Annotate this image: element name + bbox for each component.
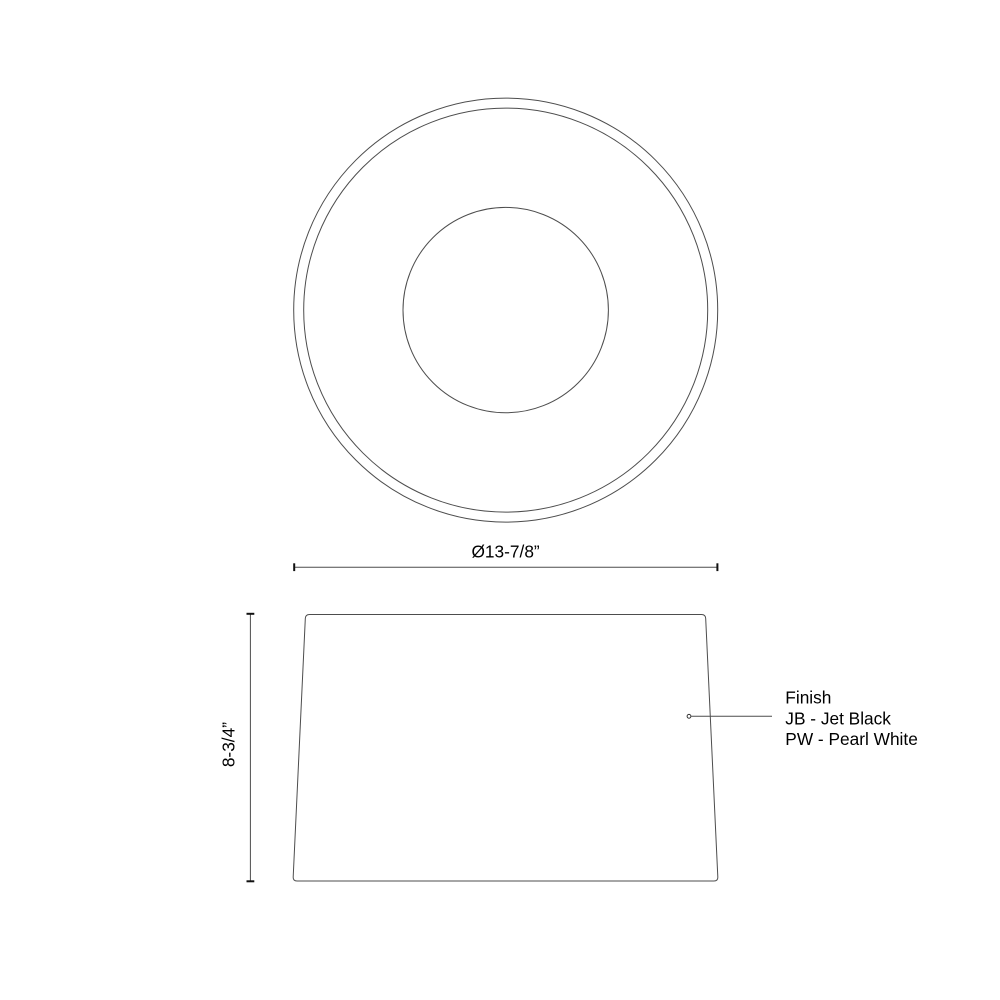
svg-text:8-3/4”: 8-3/4” (219, 722, 239, 767)
svg-text:Finish: Finish (785, 688, 831, 708)
svg-text:Ø13-7/8”: Ø13-7/8” (471, 542, 539, 562)
svg-text:JB - Jet Black: JB - Jet Black (785, 708, 891, 728)
svg-text:PW - Pearl White: PW - Pearl White (785, 729, 918, 749)
